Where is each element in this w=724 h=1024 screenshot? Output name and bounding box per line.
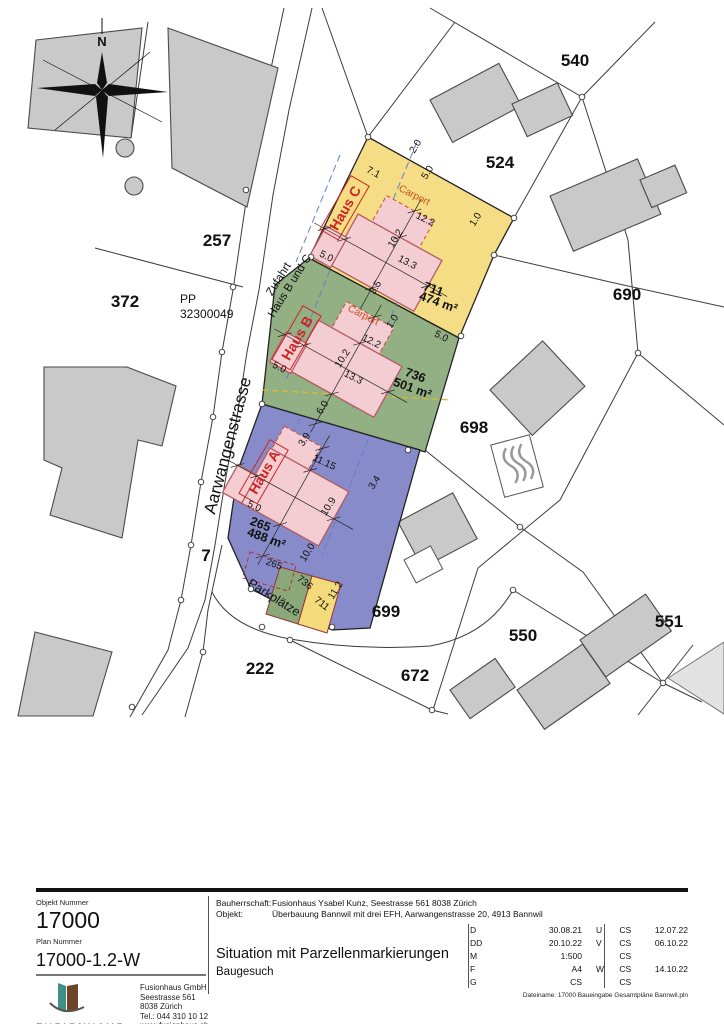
parcel-number-551: 551: [655, 612, 683, 631]
north-label: N: [97, 34, 106, 49]
building-524-a: [430, 63, 521, 142]
parcel-number-690: 690: [613, 285, 641, 304]
rev-value: A4: [495, 963, 582, 976]
title-block: Objekt Nummer 17000 Plan Nummer 17000-1.…: [0, 888, 724, 1024]
divider: [36, 974, 206, 976]
objekt-value: Überbauung Bannwil mit drei EFH, Aarwang…: [272, 909, 543, 920]
rev-key: U: [596, 924, 619, 937]
title-block-left: Objekt Nummer 17000 Plan Nummer 17000-1.…: [36, 898, 208, 1024]
boundary-372-257: [95, 248, 243, 287]
parcel-number-698: 698: [460, 418, 488, 437]
plan-subtitle: Baugesuch: [216, 966, 466, 978]
company-phone: Tel.: 044 310 10 12: [140, 1012, 208, 1022]
fusionhaus-logo-icon: [36, 981, 96, 1015]
divider: [468, 924, 469, 988]
tree-icon: [116, 139, 134, 157]
company-name: Fusionhaus GmbH: [140, 983, 208, 993]
bauherrschaft-label: Bauherrschaft:: [216, 898, 272, 909]
dim-c-2.0: 2.0: [408, 137, 425, 155]
building-372: [44, 367, 176, 538]
tree-icon: [125, 177, 143, 195]
rev-value: CS: [495, 976, 582, 989]
pp-label-line2: 32300049: [180, 307, 234, 321]
bauherrschaft-value: Fusionhaus Ysabel Kunz, Seestrasse 561 8…: [272, 898, 477, 909]
rev-key: W: [596, 963, 619, 976]
revision-row: G CS CS: [470, 976, 688, 989]
company-street: Seestrasse 561: [140, 993, 208, 1003]
boundary-690-698: [494, 255, 724, 307]
rev-initials: CS: [619, 976, 642, 989]
rev-key: V: [596, 937, 619, 950]
wave-icon: [491, 435, 544, 498]
plan-number-label: Plan Nummer: [36, 937, 208, 946]
revision-table: D 30.08.21 U CS 12.07.22 DD 20.10.22 V C…: [470, 924, 688, 989]
title-block-bar: [36, 888, 688, 892]
rev-date: 12.07.22: [643, 924, 688, 937]
objekt-label: Objekt:: [216, 909, 272, 920]
rev-initials: CS: [619, 924, 642, 937]
company-city: 8038 Zürich: [140, 1002, 208, 1012]
revision-row: D 30.08.21 U CS 12.07.22: [470, 924, 688, 937]
rev-key: D: [470, 924, 495, 937]
building-257-west: [28, 28, 142, 138]
rev-date: [643, 976, 688, 989]
plan-number: 17000-1.2-W: [36, 949, 208, 971]
parcel-number-257: 257: [203, 231, 231, 250]
road-spur-edge: [185, 545, 222, 717]
building-222: [18, 632, 112, 716]
rev-value: 1:500: [495, 950, 582, 963]
rev-initials: CS: [619, 950, 642, 963]
fusionhaus-logo: FUSIONHAUS: [36, 981, 134, 1024]
parcel-number-222: 222: [246, 659, 274, 678]
rev-key: DD: [470, 937, 495, 950]
revision-row: M 1:500 CS: [470, 950, 688, 963]
filename: Dateiname: 17000 Baueingabe Gesamtpläne …: [400, 992, 688, 999]
situation-map: N 540 524 257 372 690 698 699 550 551 67…: [0, 0, 724, 888]
parcel-number-524: 524: [486, 153, 515, 172]
company-address: Fusionhaus GmbH Seestrasse 561 8038 Züri…: [140, 983, 208, 1024]
revision-row: DD 20.10.22 V CS 06.10.22: [470, 937, 688, 950]
rev-key: M: [470, 950, 495, 963]
object-number: 17000: [36, 907, 208, 933]
rev-value: 30.08.21: [495, 924, 582, 937]
parcel-number-699: 699: [372, 602, 400, 621]
divider: [208, 896, 209, 994]
building-257: [168, 28, 278, 207]
rev-key: [596, 950, 619, 963]
parcel-number-7: 7: [201, 546, 210, 565]
rev-initials: CS: [619, 937, 642, 950]
building-690: [550, 159, 661, 251]
hatched-area-672: [668, 642, 724, 714]
building-698: [490, 341, 585, 435]
title-block-middle: Bauherrschaft: Fusionhaus Ysabel Kunz, S…: [216, 898, 466, 978]
rev-key: [596, 976, 619, 989]
rev-key: F: [470, 963, 495, 976]
object-number-label: Objekt Nummer: [36, 898, 208, 907]
revision-row: F A4 W CS 14.10.22: [470, 963, 688, 976]
rev-date: 06.10.22: [643, 937, 688, 950]
plan-title: Situation mit Parzellenmarkierungen: [216, 946, 466, 962]
site-plan-page: N 540 524 257 372 690 698 699 550 551 67…: [0, 0, 724, 1024]
boundary-690-551: [582, 97, 724, 425]
zufahrt-east-line: [322, 8, 368, 137]
building-524-b: [512, 83, 573, 137]
rev-key: G: [470, 976, 495, 989]
parcel-number-550: 550: [509, 626, 537, 645]
parcel-number-672: 672: [401, 666, 429, 685]
rev-value: 20.10.22: [495, 937, 582, 950]
rev-initials: CS: [619, 963, 642, 976]
parcel-number-540: 540: [561, 51, 589, 70]
rev-date: 14.10.22: [643, 963, 688, 976]
pp-label-line1: PP: [180, 292, 196, 306]
parcel-number-372: 372: [111, 292, 139, 311]
building-550-b: [450, 658, 515, 718]
rev-date: [643, 950, 688, 963]
